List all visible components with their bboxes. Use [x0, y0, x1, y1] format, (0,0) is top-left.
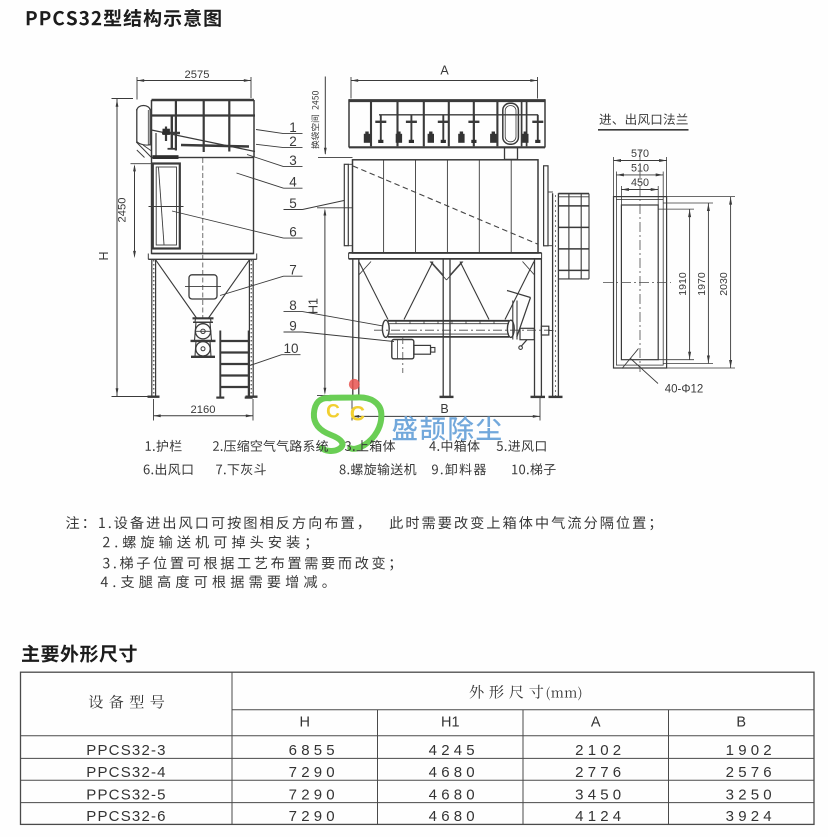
svg-text:2450: 2450 — [117, 198, 129, 223]
svg-text:7290: 7290 — [289, 786, 339, 803]
svg-text:4680: 4680 — [429, 808, 479, 825]
svg-text:2776: 2776 — [575, 764, 625, 781]
svg-text:PPCS32-4: PPCS32-4 — [86, 764, 166, 781]
svg-text:H1: H1 — [307, 298, 321, 314]
svg-text:40-Φ12: 40-Φ12 — [665, 384, 704, 396]
svg-text:2576: 2576 — [726, 764, 776, 781]
svg-text:C: C — [326, 402, 340, 423]
svg-text:4124: 4124 — [575, 808, 625, 825]
svg-text:3450: 3450 — [575, 786, 625, 803]
svg-text:4680: 4680 — [429, 786, 479, 803]
svg-text:4: 4 — [289, 175, 297, 190]
svg-text:1910: 1910 — [677, 272, 689, 296]
svg-text:PPCS32-6: PPCS32-6 — [86, 808, 166, 825]
svg-text:7290: 7290 — [289, 764, 339, 781]
svg-text:3250: 3250 — [726, 786, 776, 803]
svg-text:2102: 2102 — [575, 742, 625, 759]
svg-text:3: 3 — [289, 153, 297, 168]
svg-text:B: B — [440, 402, 448, 416]
svg-text:PPCS32-5: PPCS32-5 — [86, 786, 166, 803]
svg-text:2: 2 — [289, 134, 297, 149]
svg-text:1902: 1902 — [726, 742, 776, 759]
svg-text:H: H — [97, 251, 111, 260]
svg-text:5: 5 — [289, 196, 297, 211]
svg-text:9: 9 — [289, 318, 297, 333]
svg-text:2030: 2030 — [718, 272, 730, 296]
svg-text:8: 8 — [289, 298, 297, 313]
svg-text:10: 10 — [283, 341, 298, 356]
svg-text:A: A — [440, 64, 449, 78]
svg-text:H: H — [300, 715, 310, 731]
svg-text:1: 1 — [289, 120, 297, 135]
svg-text:4245: 4245 — [429, 742, 479, 759]
svg-text:H1: H1 — [441, 715, 460, 731]
svg-text:6855: 6855 — [289, 742, 339, 759]
svg-text:A: A — [591, 715, 601, 731]
svg-text:2575: 2575 — [185, 69, 210, 81]
svg-text:6: 6 — [289, 225, 297, 240]
svg-text:1970: 1970 — [696, 272, 708, 296]
svg-text:7: 7 — [289, 263, 297, 278]
svg-text:2160: 2160 — [191, 404, 216, 416]
svg-text:4680: 4680 — [429, 764, 479, 781]
svg-text:C: C — [350, 403, 365, 426]
svg-text:B: B — [736, 715, 746, 731]
svg-text:PPCS32-3: PPCS32-3 — [86, 742, 166, 759]
svg-text:3924: 3924 — [726, 808, 776, 825]
svg-text:7290: 7290 — [289, 808, 339, 825]
